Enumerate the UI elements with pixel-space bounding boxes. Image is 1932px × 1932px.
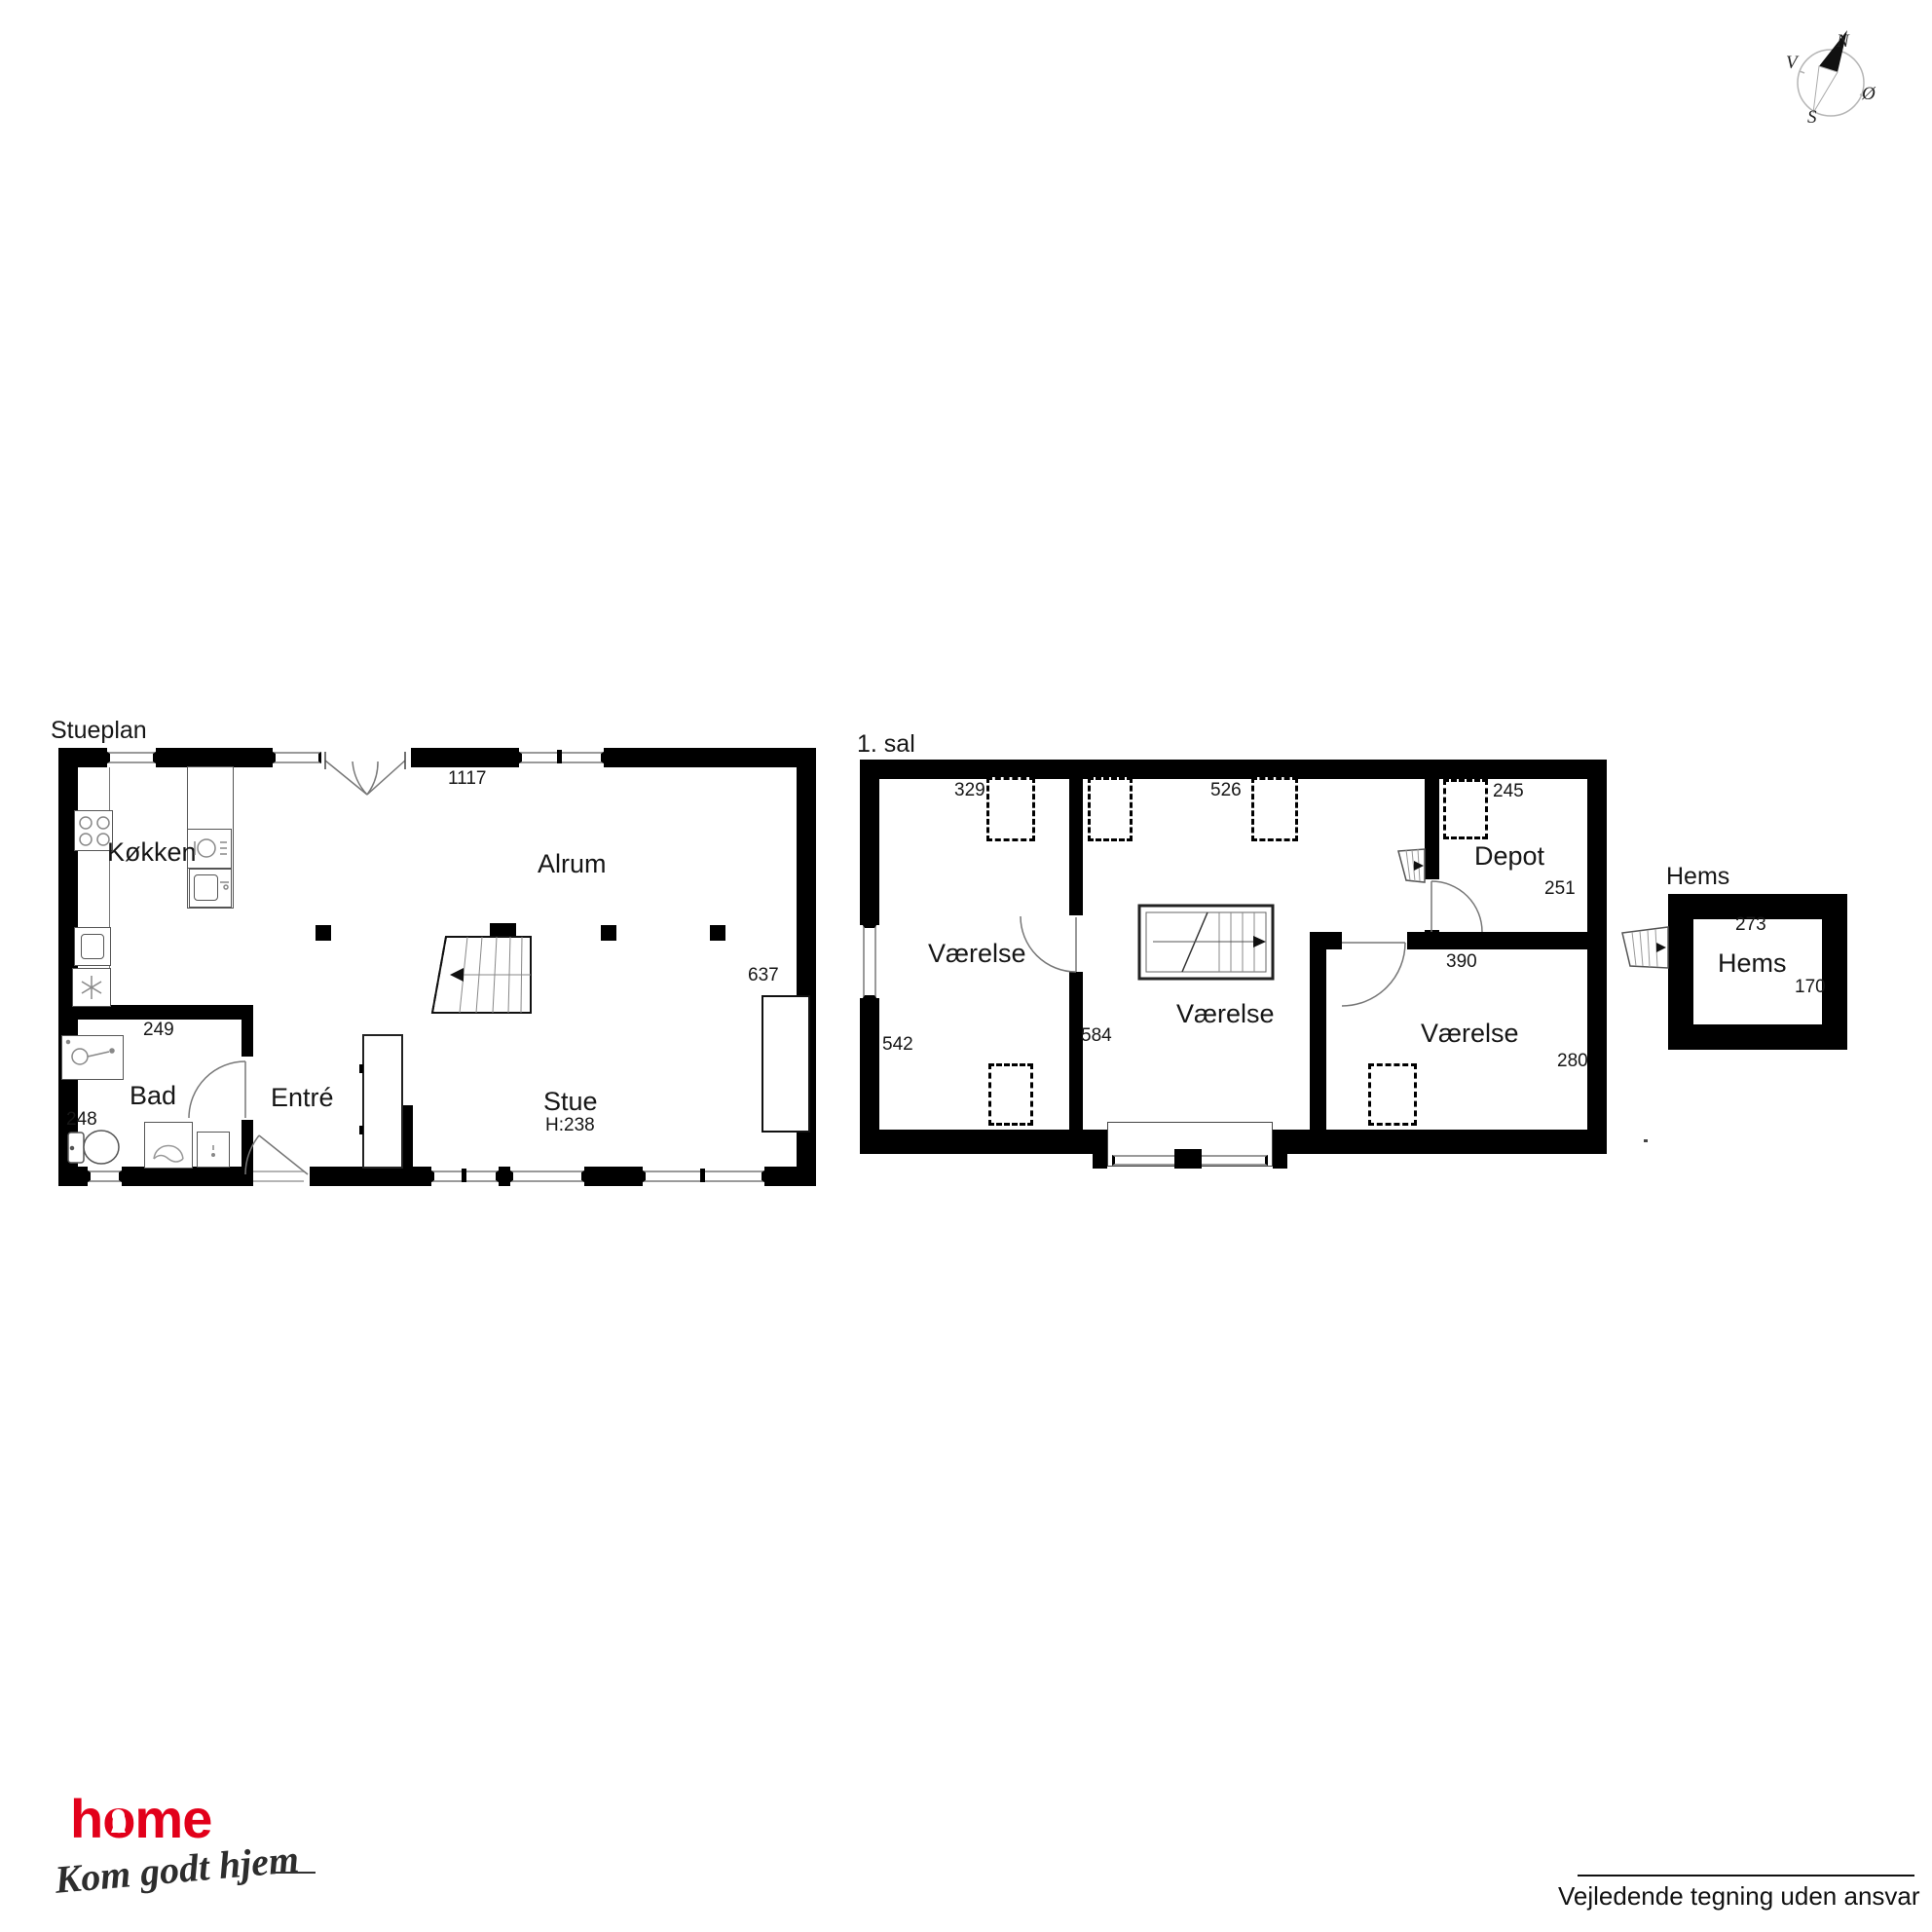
kitchen-faucet-glyph xyxy=(220,882,229,889)
bath-door-icon xyxy=(189,1061,245,1118)
tagline-rule xyxy=(271,1872,316,1874)
loft-ladder-icon xyxy=(1398,849,1425,882)
compass-north-label: N xyxy=(1837,31,1849,53)
stove-burners xyxy=(80,817,109,845)
floorplan-sheet: Stueplan Køkken Alrum xyxy=(0,0,1932,1932)
snowflake-icon xyxy=(82,976,101,999)
depot-door-icon xyxy=(1431,881,1482,932)
dishwasher-glyph xyxy=(195,839,227,857)
room-door-icon xyxy=(1021,916,1076,972)
room-door-icon xyxy=(1342,943,1405,1006)
front-door-icon xyxy=(245,1135,308,1174)
hems-ladder-icon xyxy=(1622,927,1668,968)
shower-glyph xyxy=(67,1041,115,1065)
footer-rule xyxy=(1578,1875,1914,1876)
stairs-upper-icon xyxy=(1139,906,1273,979)
linework-layer xyxy=(0,0,1932,1932)
small-sink-glyph xyxy=(211,1145,215,1157)
compass-icon xyxy=(1798,30,1865,116)
toilet-glyph xyxy=(68,1131,119,1164)
compass-south-label: S xyxy=(1807,107,1817,129)
home-logo: home xyxy=(70,1792,211,1846)
disclaimer-text: Vejledende tegning uden ansvar xyxy=(1558,1883,1914,1909)
washer-glyph xyxy=(154,1146,183,1163)
double-door-icon xyxy=(325,752,405,795)
compass-west-label: V xyxy=(1786,53,1798,74)
stairs-ground-icon xyxy=(432,937,531,1013)
terrace-door xyxy=(762,995,810,1133)
compass-east-label: Ø xyxy=(1862,84,1876,105)
